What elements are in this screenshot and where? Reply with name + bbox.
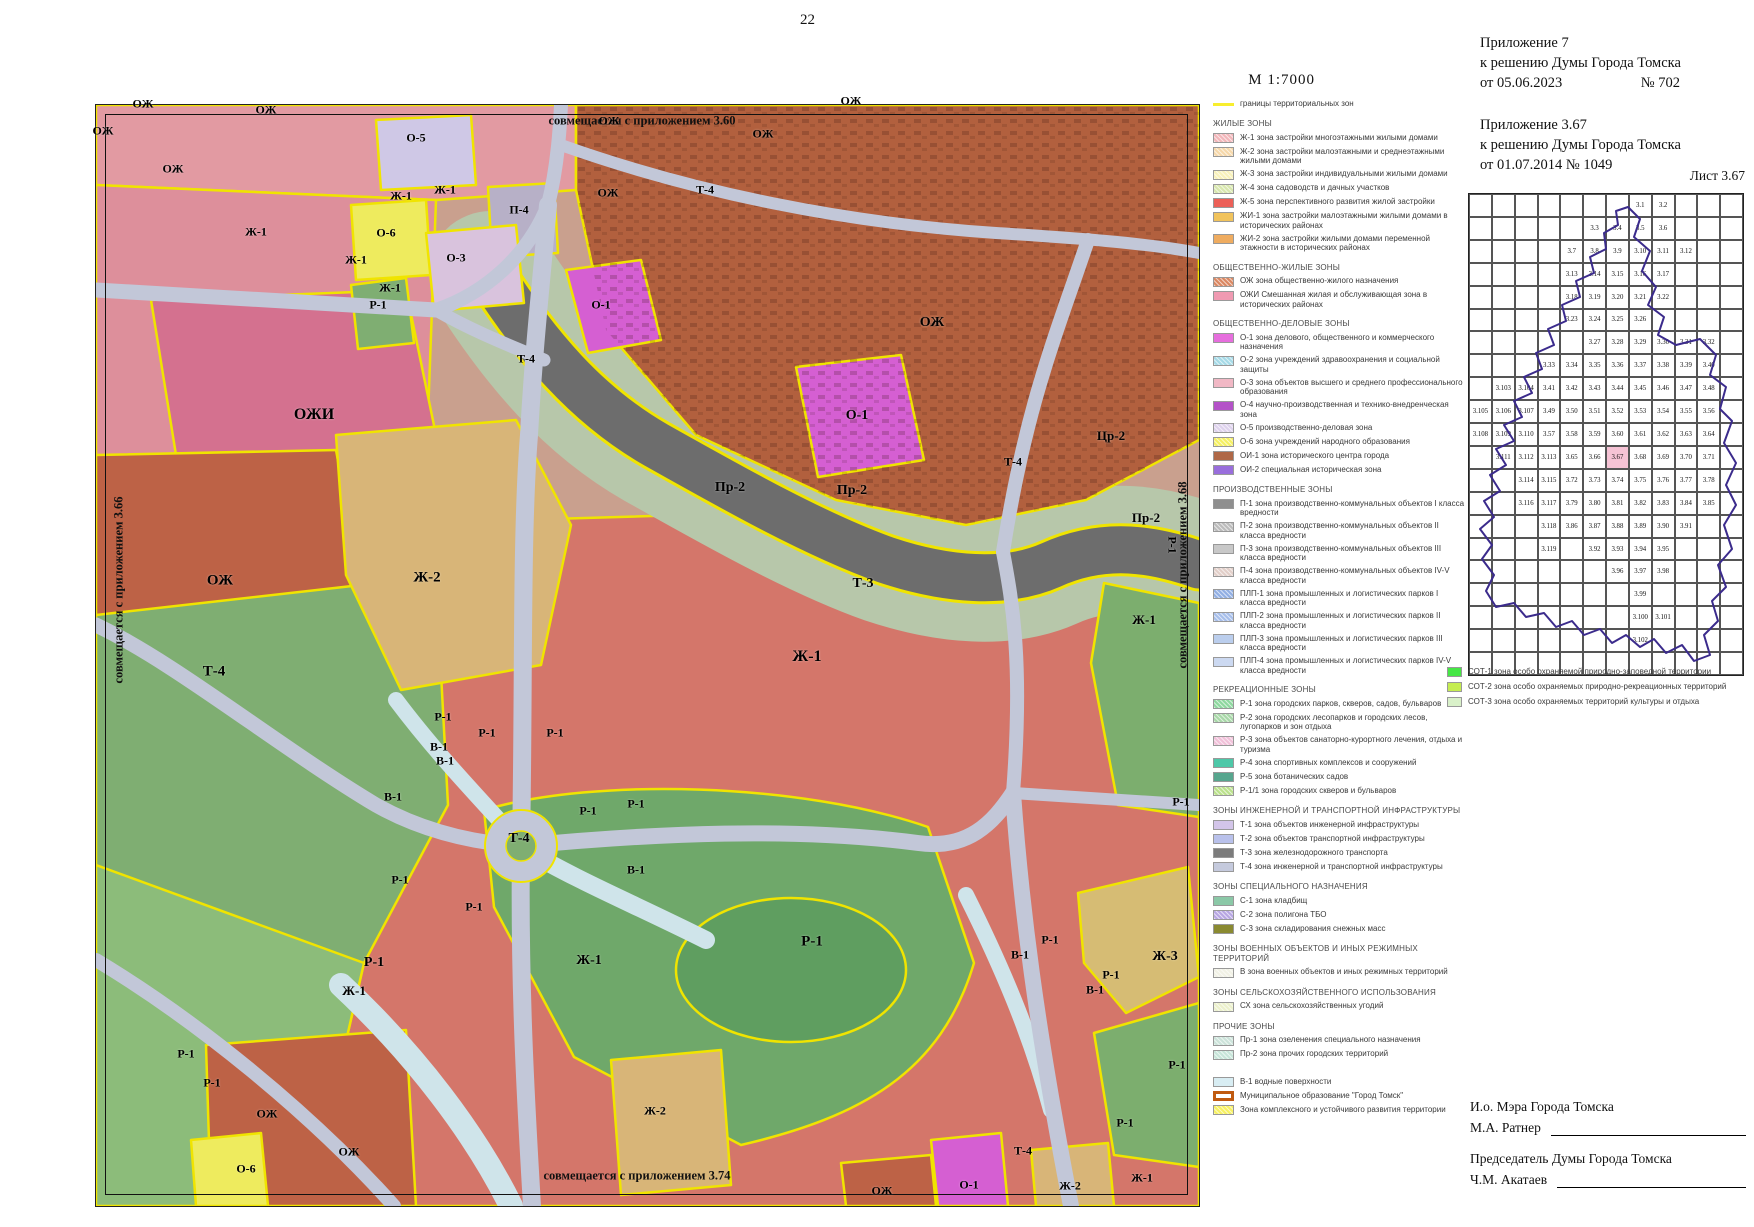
legend-item: Т-2 зона объектов транспортной инфрастру…	[1213, 834, 1465, 845]
index-cell-3.102: 3.102	[1629, 629, 1652, 652]
index-cell-3.79: 3.79	[1560, 492, 1583, 515]
legend-swatch	[1213, 924, 1234, 934]
index-cell-empty	[1583, 583, 1606, 606]
legend-item: П-3 зона производственно-коммунальных об…	[1213, 544, 1465, 563]
index-cell-3.2: 3.2	[1652, 194, 1675, 217]
legend-item: Пр-2 зона прочих городских территорий	[1213, 1049, 1465, 1060]
legend-label: Р-3 зона объектов санаторно-курортного л…	[1240, 735, 1465, 754]
legend-item: П-4 зона производственно-коммунальных об…	[1213, 566, 1465, 585]
legend-item: В зона военных объектов и иных режимных …	[1213, 967, 1465, 978]
index-cell-3.62: 3.62	[1652, 423, 1675, 446]
legend-swatch	[1213, 567, 1234, 577]
legend-label: СОТ-3 зона особо охраняемых территорий к…	[1468, 697, 1699, 707]
index-cell-3.85: 3.85	[1697, 492, 1720, 515]
index-cell-empty	[1515, 263, 1538, 286]
legend-item: ЖИ-2 зона застройки жилыми домами переме…	[1213, 234, 1465, 253]
signatures-block: И.о. Мэра Города Томска М.А. Ратнер Пред…	[1470, 1098, 1746, 1202]
legend-label: ЖИ-1 зона застройки малоэтажными жилыми …	[1240, 211, 1465, 230]
index-cell-3.61: 3.61	[1629, 423, 1652, 446]
legend-item: Р-1 зона городских парков, скверов, садо…	[1213, 699, 1465, 710]
index-cell-3.101: 3.101	[1652, 606, 1675, 629]
index-cell-empty	[1469, 446, 1492, 469]
legend-swatch	[1447, 697, 1462, 707]
index-cell-3.94: 3.94	[1629, 538, 1652, 561]
index-cell-3.66: 3.66	[1583, 446, 1606, 469]
index-cell-empty	[1652, 629, 1675, 652]
index-cell-empty	[1560, 331, 1583, 354]
legend-swatch	[1213, 862, 1234, 872]
index-cell-empty	[1538, 217, 1561, 240]
appendix-7-date: от 05.06.2023	[1480, 73, 1562, 93]
index-cell-empty	[1675, 194, 1698, 217]
legend-item: Пр-1 зона озеленения специального назнач…	[1213, 1035, 1465, 1046]
index-cell-empty	[1697, 240, 1720, 263]
index-cell-3.59: 3.59	[1583, 423, 1606, 446]
index-cell-3.11: 3.11	[1652, 240, 1675, 263]
index-cell-3.63: 3.63	[1675, 423, 1698, 446]
legend-item: ЖИ-1 зона застройки малоэтажными жилыми …	[1213, 211, 1465, 230]
legend-label: Т-4 зона инженерной и транспортной инфра…	[1240, 862, 1443, 872]
index-cell-empty	[1560, 606, 1583, 629]
index-cell-3.80: 3.80	[1583, 492, 1606, 515]
index-cell-3.109: 3.109	[1492, 423, 1515, 446]
index-cell-empty	[1720, 240, 1743, 263]
legend-label: ЖИ-2 зона застройки жилыми домами переме…	[1240, 234, 1465, 253]
legend-label: В зона военных объектов и иных режимных …	[1240, 967, 1448, 977]
signature-2-title: Председатель Думы Города Томска	[1470, 1150, 1746, 1167]
index-cell-empty	[1515, 583, 1538, 606]
legend-item: Ж-1 зона застройки многоэтажными жилыми …	[1213, 133, 1465, 144]
index-cell-3.100: 3.100	[1629, 606, 1652, 629]
legend-label: ПЛП-2 зона промышленных и логистических …	[1240, 611, 1465, 630]
legend-label: Ж-1 зона застройки многоэтажными жилыми …	[1240, 133, 1438, 143]
legend-label: О-5 производственно-деловая зона	[1240, 423, 1372, 433]
index-cell-3.46: 3.46	[1652, 377, 1675, 400]
index-cell-empty	[1560, 538, 1583, 561]
index-cell-empty	[1515, 629, 1538, 652]
index-cell-3.92: 3.92	[1583, 538, 1606, 561]
index-cell-empty	[1720, 538, 1743, 561]
index-cell-3.91: 3.91	[1675, 515, 1698, 538]
index-cell-3.84: 3.84	[1675, 492, 1698, 515]
legend-item: СОТ-3 зона особо охраняемых территорий к…	[1447, 697, 1747, 708]
legend-item: О-3 зона объектов высшего и среднего про…	[1213, 378, 1465, 397]
index-cell-3.95: 3.95	[1652, 538, 1675, 561]
legend-swatch	[1213, 786, 1234, 796]
legend-swatch	[1213, 758, 1234, 768]
legend-item: ОЖ зона общественно-жилого назначения	[1213, 276, 1465, 287]
index-cell-3.38: 3.38	[1652, 354, 1675, 377]
index-cell-3.88: 3.88	[1606, 515, 1629, 538]
index-cell-empty	[1538, 194, 1561, 217]
legend-item: Р-4 зона спортивных комплексов и сооруже…	[1213, 758, 1465, 769]
index-cell-empty	[1697, 309, 1720, 332]
legend-swatch	[1213, 333, 1234, 343]
appendix-367-line2: к решению Думы Города Томска	[1480, 135, 1750, 155]
index-cell-3.97: 3.97	[1629, 560, 1652, 583]
index-cell-empty	[1652, 583, 1675, 606]
legend-swatch	[1213, 133, 1234, 143]
legend-label: Муниципальное образование "Город Томск"	[1240, 1091, 1403, 1101]
index-cell-3.116: 3.116	[1515, 492, 1538, 515]
legend-label: Р-4 зона спортивных комплексов и сооруже…	[1240, 758, 1417, 768]
index-cell-empty	[1492, 469, 1515, 492]
appendix-7-number: № 702	[1641, 73, 1680, 93]
index-cell-empty	[1469, 560, 1492, 583]
index-cell-3.103: 3.103	[1492, 377, 1515, 400]
index-cell-3.5: 3.5	[1629, 217, 1652, 240]
index-cell-empty	[1469, 377, 1492, 400]
index-cell-3.37: 3.37	[1629, 354, 1652, 377]
index-cell-3.111: 3.111	[1492, 446, 1515, 469]
header-appendix-7: Приложение 7 к решению Думы Города Томск…	[1480, 33, 1750, 93]
index-cell-3.28: 3.28	[1606, 331, 1629, 354]
legend-swatch	[1213, 772, 1234, 782]
legend-section-title: ЗОНЫ ИНЖЕНЕРНОЙ И ТРАНСПОРТНОЙ ИНФРАСТРУ…	[1213, 806, 1465, 816]
legend-item: ПЛП-1 зона промышленных и логистических …	[1213, 589, 1465, 608]
index-cell-3.112: 3.112	[1515, 446, 1538, 469]
index-cell-3.21: 3.21	[1629, 286, 1652, 309]
legend-swatch	[1213, 170, 1234, 180]
legend-item: Ж-5 зона перспективного развития жилой з…	[1213, 197, 1465, 208]
index-cell-3.45: 3.45	[1629, 377, 1652, 400]
index-cell-3.54: 3.54	[1652, 400, 1675, 423]
legend-swatch	[1213, 1091, 1234, 1101]
legend-swatch	[1213, 356, 1234, 366]
legend-label: П-1 зона производственно-коммунальных об…	[1240, 499, 1465, 518]
legend-label: Р-5 зона ботанических садов	[1240, 772, 1348, 782]
index-cell-empty	[1492, 217, 1515, 240]
index-cell-empty	[1469, 194, 1492, 217]
legend-swatch	[1213, 499, 1234, 509]
legend-item: границы территориальных зон	[1213, 99, 1465, 110]
index-cell-empty	[1469, 583, 1492, 606]
index-cell-3.42: 3.42	[1560, 377, 1583, 400]
index-cell-3.30: 3.30	[1652, 331, 1675, 354]
index-cell-empty	[1697, 560, 1720, 583]
index-cell-empty	[1538, 606, 1561, 629]
index-cell-empty	[1652, 309, 1675, 332]
sheet-index-map: 3.13.23.33.43.53.63.73.83.93.103.113.123…	[1468, 193, 1744, 676]
index-cell-3.113: 3.113	[1538, 446, 1561, 469]
index-cell-empty	[1492, 286, 1515, 309]
index-cell-empty	[1515, 606, 1538, 629]
legend-swatch	[1213, 612, 1234, 622]
index-cell-3.34: 3.34	[1560, 354, 1583, 377]
index-cell-3.56: 3.56	[1697, 400, 1720, 423]
index-cell-empty	[1606, 629, 1629, 652]
legend-section-title: ЗОНЫ СПЕЦИАЛЬНОГО НАЗНАЧЕНИЯ	[1213, 882, 1465, 892]
index-cell-empty	[1560, 217, 1583, 240]
index-cell-empty	[1675, 217, 1698, 240]
index-cell-empty	[1538, 263, 1561, 286]
index-cell-empty	[1560, 194, 1583, 217]
index-cell-empty	[1720, 515, 1743, 538]
index-cell-3.73: 3.73	[1583, 469, 1606, 492]
index-cell-empty	[1697, 629, 1720, 652]
legend-swatch	[1213, 910, 1234, 920]
legend-item: С-2 зона полигона ТБО	[1213, 910, 1465, 921]
legend: границы территориальных зонЖИЛЫЕ ЗОНЫЖ-1…	[1213, 95, 1465, 1119]
legend-swatch	[1213, 437, 1234, 447]
index-cell-empty	[1720, 286, 1743, 309]
legend-item: О-4 научно-производственная и технико-вн…	[1213, 400, 1465, 419]
index-cell-3.106: 3.106	[1492, 400, 1515, 423]
index-cell-3.31: 3.31	[1675, 331, 1698, 354]
legend-label: СХ зона сельскохозяйственных угодий	[1240, 1001, 1383, 1011]
legend-swatch	[1213, 589, 1234, 599]
index-cell-empty	[1720, 606, 1743, 629]
index-cell-empty	[1492, 194, 1515, 217]
index-cell-3.27: 3.27	[1583, 331, 1606, 354]
index-cell-3.87: 3.87	[1583, 515, 1606, 538]
legend-label: П-4 зона производственно-коммунальных об…	[1240, 566, 1465, 585]
index-cell-3.36: 3.36	[1606, 354, 1629, 377]
legend-label: О-4 научно-производственная и технико-вн…	[1240, 400, 1465, 419]
legend-item: Ж-4 зона садоводств и дачных участков	[1213, 183, 1465, 194]
index-cell-3.93: 3.93	[1606, 538, 1629, 561]
index-cell-empty	[1469, 286, 1492, 309]
index-cell-3.35: 3.35	[1583, 354, 1606, 377]
legend-swatch	[1213, 713, 1234, 723]
legend-label: ОЖИ Смешанная жилая и обслуживающая зона…	[1240, 290, 1465, 309]
index-cell-3.68: 3.68	[1629, 446, 1652, 469]
legend-swatch	[1213, 234, 1234, 244]
index-cell-empty	[1720, 354, 1743, 377]
legend-label: Пр-1 зона озеленения специального назнач…	[1240, 1035, 1421, 1045]
legend-section-title: ПРОЧИЕ ЗОНЫ	[1213, 1022, 1465, 1032]
index-cell-empty	[1469, 263, 1492, 286]
index-cell-empty	[1469, 492, 1492, 515]
legend-item: О-2 зона учреждений здравоохранения и со…	[1213, 355, 1465, 374]
signature-2-name: Ч.М. Акатаев	[1470, 1171, 1547, 1188]
index-cell-empty	[1583, 629, 1606, 652]
legend-label: Ж-5 зона перспективного развития жилой з…	[1240, 197, 1435, 207]
legend-item: Р-3 зона объектов санаторно-курортного л…	[1213, 735, 1465, 754]
index-cell-3.8: 3.8	[1583, 240, 1606, 263]
index-cell-3.78: 3.78	[1697, 469, 1720, 492]
index-cell-3.77: 3.77	[1675, 469, 1698, 492]
appendix-7-line2: к решению Думы Города Томска	[1480, 53, 1750, 73]
index-cell-empty	[1469, 354, 1492, 377]
index-cell-3.69: 3.69	[1652, 446, 1675, 469]
index-cell-empty	[1697, 606, 1720, 629]
legend-label: О-3 зона объектов высшего и среднего про…	[1240, 378, 1465, 397]
index-cell-3.83: 3.83	[1652, 492, 1675, 515]
index-cell-empty	[1515, 515, 1538, 538]
legend-swatch	[1213, 212, 1234, 222]
index-cell-empty	[1720, 217, 1743, 240]
index-cell-3.108: 3.108	[1469, 423, 1492, 446]
legend-item: СОТ-2 зона особо охраняемых природно-рек…	[1447, 682, 1747, 693]
legend-swatch	[1213, 657, 1234, 667]
legend-swatch	[1447, 667, 1462, 677]
legend-item: Р-2 зона городских лесопарков и городски…	[1213, 713, 1465, 732]
index-cell-3.25: 3.25	[1606, 309, 1629, 332]
legend-item: Т-1 зона объектов инженерной инфраструкт…	[1213, 820, 1465, 831]
index-cell-3.70: 3.70	[1675, 446, 1698, 469]
legend-item: В-1 водные поверхности	[1213, 1077, 1465, 1088]
legend-label: Р-2 зона городских лесопарков и городски…	[1240, 713, 1465, 732]
index-cell-empty	[1515, 217, 1538, 240]
index-cell-empty	[1469, 606, 1492, 629]
index-cell-empty	[1606, 606, 1629, 629]
index-cell-3.14: 3.14	[1583, 263, 1606, 286]
index-cell-empty	[1720, 423, 1743, 446]
legend-swatch	[1213, 401, 1234, 411]
index-cell-empty	[1492, 331, 1515, 354]
signature-1-rule	[1551, 1121, 1746, 1136]
sot-legend: СОТ-1 зона особо охраняемой природно-зап…	[1447, 662, 1747, 712]
index-cell-empty	[1492, 263, 1515, 286]
zoning-map-sheet: { "page": { "number": "22", "scale": "М …	[0, 0, 1754, 1227]
legend-label: ПЛП-1 зона промышленных и логистических …	[1240, 589, 1465, 608]
index-cell-3.22: 3.22	[1652, 286, 1675, 309]
index-cell-3.82: 3.82	[1629, 492, 1652, 515]
index-cell-empty	[1469, 515, 1492, 538]
index-cell-3.16: 3.16	[1629, 263, 1652, 286]
legend-label: Р-1/1 зона городских скверов и бульваров	[1240, 786, 1396, 796]
index-cell-empty	[1515, 560, 1538, 583]
index-cell-empty	[1720, 331, 1743, 354]
index-cell-empty	[1515, 354, 1538, 377]
index-cell-3.47: 3.47	[1675, 377, 1698, 400]
legend-swatch	[1213, 522, 1234, 532]
legend-swatch	[1213, 896, 1234, 906]
signature-1-title: И.о. Мэра Города Томска	[1470, 1098, 1746, 1115]
index-cell-3.33: 3.33	[1538, 354, 1561, 377]
legend-swatch	[1213, 1050, 1234, 1060]
index-cell-3.43: 3.43	[1583, 377, 1606, 400]
legend-label: Ж-3 зона застройки индивидуальными жилым…	[1240, 169, 1448, 179]
legend-swatch	[1213, 1077, 1234, 1087]
legend-swatch	[1213, 699, 1234, 709]
index-cell-empty	[1583, 560, 1606, 583]
index-cell-3.105: 3.105	[1469, 400, 1492, 423]
index-cell-empty	[1675, 309, 1698, 332]
index-cell-3.67: 3.67	[1606, 446, 1629, 469]
legend-item: С-3 зона складирования снежных масс	[1213, 924, 1465, 935]
index-cell-3.19: 3.19	[1583, 286, 1606, 309]
index-cell-3.17: 3.17	[1652, 263, 1675, 286]
index-cell-3.60: 3.60	[1606, 423, 1629, 446]
index-cell-3.58: 3.58	[1560, 423, 1583, 446]
sheet-number-label: Лист 3.67	[1640, 168, 1745, 184]
legend-label: Т-2 зона объектов транспортной инфрастру…	[1240, 834, 1425, 844]
index-cell-empty	[1492, 606, 1515, 629]
legend-section-title: ЗОНЫ ВОЕННЫХ ОБЪЕКТОВ И ИНЫХ РЕЖИМНЫХ ТЕ…	[1213, 944, 1465, 963]
index-cell-empty	[1675, 538, 1698, 561]
legend-item: ОИ-2 специальная историческая зона	[1213, 465, 1465, 476]
index-cell-3.81: 3.81	[1606, 492, 1629, 515]
index-cell-empty	[1492, 309, 1515, 332]
legend-swatch	[1213, 834, 1234, 844]
legend-label: Р-1 зона городских парков, скверов, садо…	[1240, 699, 1441, 709]
legend-swatch	[1213, 147, 1234, 157]
index-cell-3.39: 3.39	[1675, 354, 1698, 377]
index-cell-empty	[1675, 263, 1698, 286]
legend-label: границы территориальных зон	[1240, 99, 1354, 109]
index-cell-empty	[1492, 354, 1515, 377]
index-cell-3.52: 3.52	[1606, 400, 1629, 423]
index-cell-3.4: 3.4	[1606, 217, 1629, 240]
legend-swatch	[1213, 465, 1234, 475]
index-cell-empty	[1675, 583, 1698, 606]
index-cell-empty	[1675, 606, 1698, 629]
index-cell-empty	[1492, 629, 1515, 652]
index-cell-3.72: 3.72	[1560, 469, 1583, 492]
index-cell-3.107: 3.107	[1515, 400, 1538, 423]
index-cell-empty	[1720, 629, 1743, 652]
legend-item: ОИ-1 зона исторического центра города	[1213, 451, 1465, 462]
index-cell-empty	[1538, 583, 1561, 606]
index-cell-empty	[1538, 240, 1561, 263]
legend-swatch	[1213, 184, 1234, 194]
index-cell-empty	[1515, 194, 1538, 217]
legend-swatch	[1213, 820, 1234, 830]
legend-swatch	[1213, 544, 1234, 554]
legend-item: ПЛП-3 зона промышленных и логистических …	[1213, 634, 1465, 653]
index-cell-3.10: 3.10	[1629, 240, 1652, 263]
legend-section-title: ОБЩЕСТВЕННО-ЖИЛЫЕ ЗОНЫ	[1213, 263, 1465, 273]
index-cell-empty	[1469, 538, 1492, 561]
legend-item: С-1 зона кладбищ	[1213, 896, 1465, 907]
legend-section-title: ПРОИЗВОДСТВЕННЫЕ ЗОНЫ	[1213, 485, 1465, 495]
index-cell-3.86: 3.86	[1560, 515, 1583, 538]
legend-item: Р-1/1 зона городских скверов и бульваров	[1213, 786, 1465, 797]
legend-label: СОТ-1 зона особо охраняемой природно-зап…	[1468, 667, 1711, 677]
index-cell-empty	[1697, 583, 1720, 606]
appendix-367-line1: Приложение 3.67	[1480, 115, 1750, 135]
index-cell-3.18: 3.18	[1560, 286, 1583, 309]
index-cell-empty	[1515, 538, 1538, 561]
index-cell-3.110: 3.110	[1515, 423, 1538, 446]
index-cell-3.53: 3.53	[1629, 400, 1652, 423]
index-cell-3.65: 3.65	[1560, 446, 1583, 469]
legend-swatch	[1213, 423, 1234, 433]
index-cell-empty	[1697, 217, 1720, 240]
header-appendix-367: Приложение 3.67 к решению Думы Города То…	[1480, 115, 1750, 175]
legend-label: Т-1 зона объектов инженерной инфраструкт…	[1240, 820, 1419, 830]
index-cell-3.24: 3.24	[1583, 309, 1606, 332]
legend-item: Т-4 зона инженерной и транспортной инфра…	[1213, 862, 1465, 873]
index-cell-3.118: 3.118	[1538, 515, 1561, 538]
legend-swatch	[1213, 848, 1234, 858]
index-cell-empty	[1469, 469, 1492, 492]
index-cell-empty	[1697, 515, 1720, 538]
index-cell-empty	[1515, 286, 1538, 309]
index-cell-3.89: 3.89	[1629, 515, 1652, 538]
index-cell-empty	[1492, 560, 1515, 583]
index-cell-3.9: 3.9	[1606, 240, 1629, 263]
index-cell-3.55: 3.55	[1675, 400, 1698, 423]
index-cell-empty	[1560, 629, 1583, 652]
legend-label: Т-3 зона железнодорожного транспорта	[1240, 848, 1388, 858]
legend-item: Муниципальное образование "Город Томск"	[1213, 1091, 1465, 1102]
index-cell-empty	[1538, 560, 1561, 583]
legend-swatch	[1213, 1002, 1234, 1012]
index-cell-3.74: 3.74	[1606, 469, 1629, 492]
index-cell-empty	[1492, 515, 1515, 538]
legend-label: П-2 зона производственно-коммунальных об…	[1240, 521, 1465, 540]
index-cell-3.50: 3.50	[1560, 400, 1583, 423]
index-cell-empty	[1697, 538, 1720, 561]
index-cell-empty	[1560, 560, 1583, 583]
legend-section-title: РЕКРЕАЦИОННЫЕ ЗОНЫ	[1213, 685, 1465, 695]
index-cell-empty	[1606, 194, 1629, 217]
legend-item: Ж-3 зона застройки индивидуальными жилым…	[1213, 169, 1465, 180]
legend-label: ОЖ зона общественно-жилого назначения	[1240, 276, 1398, 286]
